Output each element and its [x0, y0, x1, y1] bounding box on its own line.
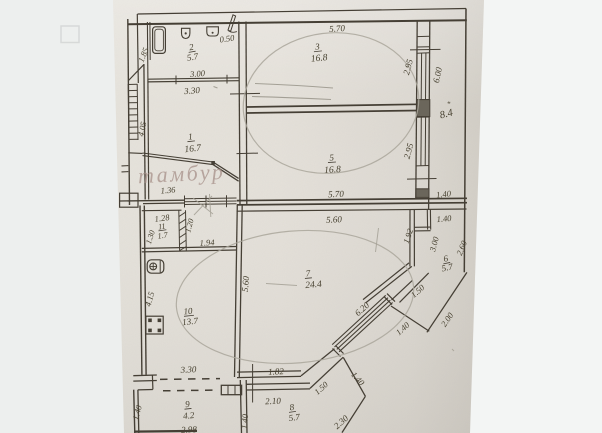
- svg-text:16.8: 16.8: [310, 53, 328, 65]
- svg-text:1.94: 1.94: [199, 237, 215, 248]
- svg-text:16.7: 16.7: [184, 143, 203, 155]
- svg-text:5.7: 5.7: [186, 51, 199, 63]
- svg-text:5.60: 5.60: [240, 275, 251, 292]
- svg-text:16.8: 16.8: [324, 165, 342, 176]
- svg-text:2.98: 2.98: [181, 424, 198, 433]
- svg-text:3.30: 3.30: [183, 85, 201, 96]
- svg-text:5.70: 5.70: [329, 23, 346, 34]
- svg-text:1.40: 1.40: [239, 413, 250, 429]
- svg-text:1.82: 1.82: [268, 366, 285, 377]
- svg-text:3.30: 3.30: [179, 364, 197, 375]
- svg-text:1.36: 1.36: [160, 184, 176, 195]
- svg-text:3.00: 3.00: [189, 68, 206, 79]
- svg-text:5.70: 5.70: [328, 189, 345, 200]
- svg-text:2.10: 2.10: [265, 396, 282, 407]
- svg-text:5.60: 5.60: [326, 214, 343, 225]
- svg-text:4.2: 4.2: [183, 410, 196, 421]
- svg-text:5.7: 5.7: [288, 412, 301, 424]
- svg-text:1.40: 1.40: [436, 188, 453, 200]
- svg-text:1.40: 1.40: [436, 213, 452, 224]
- svg-text:тамбур: тамбур: [137, 159, 226, 189]
- svg-text:24.4: 24.4: [305, 280, 323, 291]
- svg-text:10: 10: [183, 306, 193, 317]
- svg-text:13.7: 13.7: [182, 316, 199, 328]
